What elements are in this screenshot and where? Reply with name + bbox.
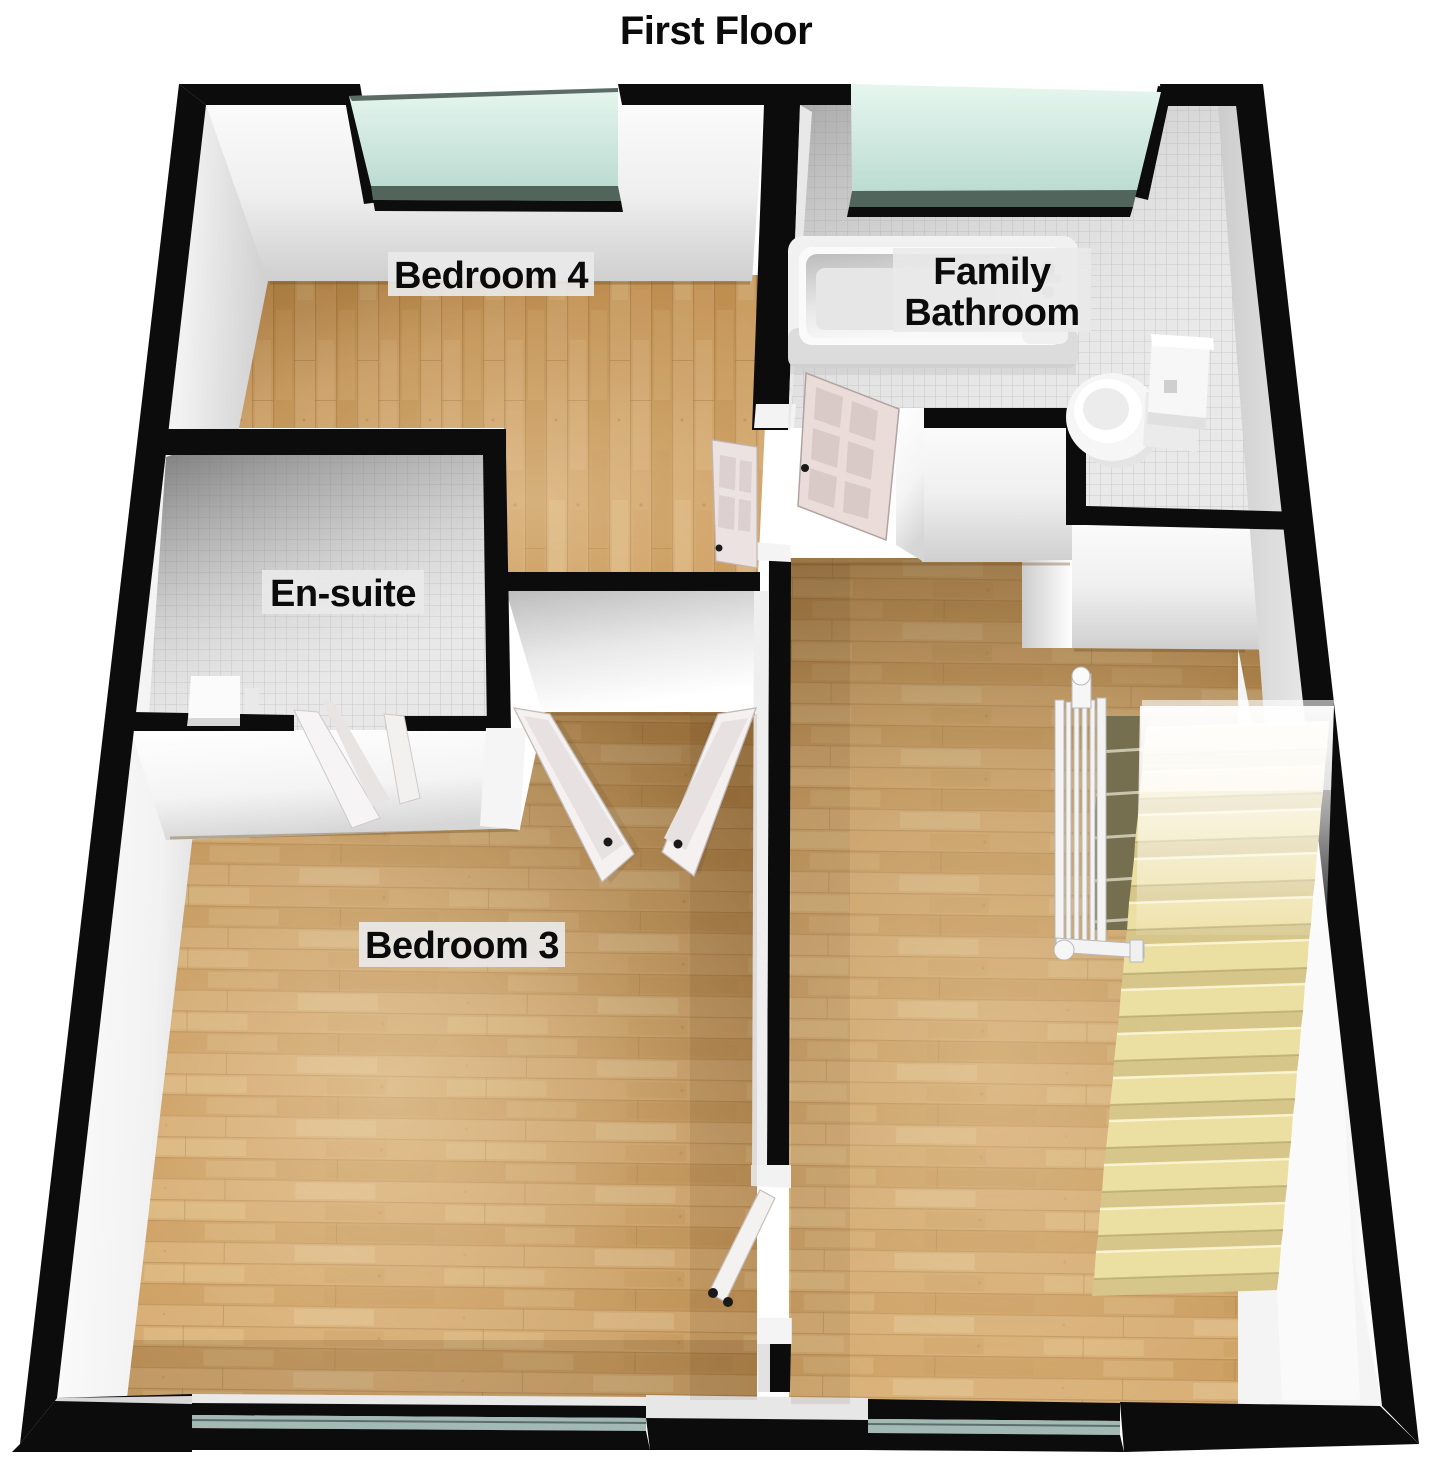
svg-text:Bedroom 3: Bedroom 3	[365, 925, 559, 967]
svg-text:First Floor: First Floor	[620, 9, 812, 53]
svg-text:Bedroom 4: Bedroom 4	[394, 255, 588, 297]
svg-text:En-suite: En-suite	[270, 573, 416, 615]
svg-text:Bathroom: Bathroom	[904, 292, 1079, 334]
svg-text:Family: Family	[933, 251, 1051, 293]
